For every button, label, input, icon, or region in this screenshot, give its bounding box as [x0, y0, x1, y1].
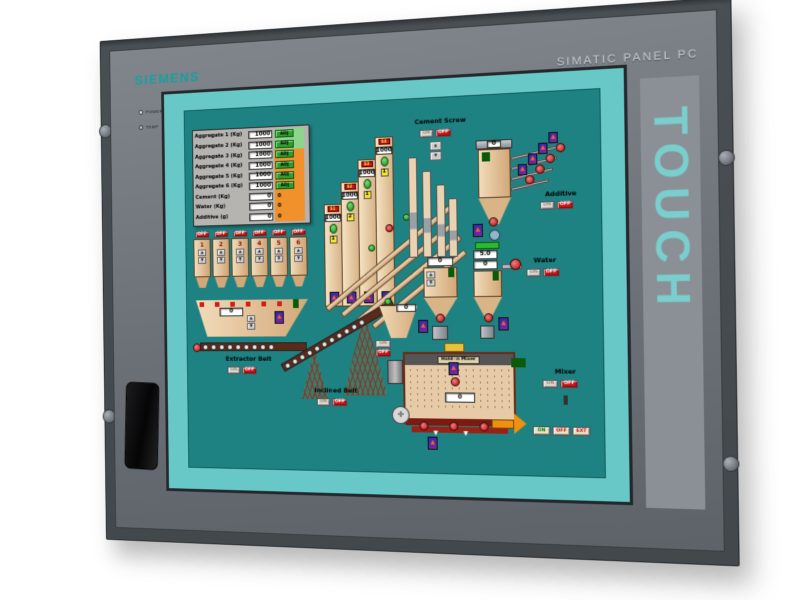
spinner-down-icon[interactable]: ▼	[275, 256, 283, 263]
silo-tag: S3	[361, 161, 373, 167]
valve-icon	[449, 422, 458, 431]
vibrator-icon: ▲	[448, 362, 458, 375]
bin-cone	[290, 276, 308, 287]
silo-value[interactable]: 1000	[325, 214, 341, 222]
water-cap	[475, 242, 499, 250]
power-led: POWER	[139, 109, 163, 115]
actual-value: 0	[275, 211, 305, 222]
hmi-screen[interactable]: Aggregate 1 (Kg)1000ADJ Aggregate 2 (Kg)…	[184, 88, 606, 478]
bin-off-button[interactable]: OFF	[195, 231, 209, 238]
inclined-off-button[interactable]: OFF	[332, 398, 347, 406]
mixer-motor	[387, 360, 403, 384]
marker-red-icon	[261, 301, 266, 306]
valve-icon	[479, 422, 488, 431]
flow-arrow	[492, 419, 515, 429]
valve-icon	[436, 314, 445, 323]
adj-button[interactable]: ADJ	[275, 171, 294, 180]
aggregate-bin: 2▲▼	[212, 238, 230, 277]
spinner-down-icon[interactable]: ▼	[430, 151, 442, 161]
bin-cone	[270, 276, 288, 287]
valve-icon	[193, 343, 201, 352]
adj-button[interactable]: ADJ	[275, 160, 294, 169]
extractor-belt-label: Extractor Belt	[209, 356, 288, 363]
valve-icon	[451, 377, 460, 386]
vibrator-icon: ▲	[548, 132, 558, 144]
marker-red-icon	[246, 302, 251, 307]
fan-icon: ✛	[392, 406, 410, 424]
silo-badge: 1	[363, 191, 371, 199]
spinner-up-icon[interactable]: ▲	[255, 248, 263, 255]
additive-label: Additive	[536, 190, 586, 199]
row-label: Aggregate 5 (Kg)	[195, 174, 247, 182]
discharge-ext-button[interactable]: EXT	[572, 427, 590, 437]
vibrator-icon: ▲	[418, 320, 428, 333]
cement-screw-off-button[interactable]: OFF	[435, 128, 451, 137]
aggregate-bin: 4▲▼	[250, 237, 268, 276]
adj-button[interactable]: ADJ	[275, 150, 294, 159]
adj-button[interactable]: ADJ	[275, 140, 294, 149]
vibrator-icon: ▲	[518, 164, 527, 176]
power-led-label: POWER	[146, 109, 163, 115]
value-field[interactable]: 1000	[248, 141, 272, 150]
mixer-off-button[interactable]: OFF	[560, 380, 578, 388]
sensor-green-icon	[346, 201, 354, 211]
vibrator-icon: ▲	[428, 437, 438, 450]
value-field[interactable]: 1000	[249, 172, 273, 181]
silo-tag: S1	[327, 206, 338, 212]
bin-off-button[interactable]: OFF	[214, 231, 229, 238]
water-setpoint[interactable]: 5.0	[473, 250, 497, 260]
aggregate-bin: 5▲▼	[270, 237, 288, 276]
marker-red-icon	[200, 302, 205, 307]
level-marks	[293, 301, 299, 308]
drum-texture	[407, 367, 512, 412]
aggregate-bin: 3▲▼	[231, 238, 249, 277]
spinner-down-icon[interactable]: ▼	[236, 256, 244, 263]
model-label: SIMATIC PANEL PC	[557, 48, 699, 69]
spinner-down-icon[interactable]: ▼	[294, 255, 303, 262]
drop-pipe	[436, 184, 446, 257]
extractor-value[interactable]: 0	[219, 308, 243, 317]
discharge-arrow-icon: ▼	[463, 431, 468, 438]
extractor-on-button[interactable]: ON	[228, 367, 241, 375]
discharge-bucket	[480, 325, 494, 338]
additive-hopper-value[interactable]: 0	[487, 140, 501, 148]
vibrator-icon: ▲	[538, 143, 548, 155]
mounting-clip	[718, 149, 735, 166]
spinner-down-icon[interactable]: ▼	[426, 279, 435, 286]
sensor-green-icon	[329, 224, 337, 234]
mixer-level-bar	[511, 360, 525, 367]
front-bezel: SIEMENS SIMATIC PANEL PC POWER TEMP TOUC…	[109, 9, 725, 552]
additive-on-button[interactable]: ON	[540, 201, 555, 210]
bin-off-button[interactable]: OFF	[233, 230, 248, 237]
mixer-banner: Hold in Mixer	[437, 356, 480, 364]
hold-hopper-value[interactable]: 0	[396, 304, 416, 312]
marker-red-icon	[230, 302, 235, 307]
silo-value[interactable]: 1000	[376, 146, 393, 155]
row-label: Additive (g)	[196, 215, 248, 222]
vibrator-icon: ▲	[528, 153, 537, 165]
drop-pipe	[422, 171, 432, 258]
sensor-green-icon	[380, 156, 388, 166]
spinner-down-icon[interactable]: ▼	[198, 257, 206, 264]
row-label: Water (Kg)	[196, 204, 248, 211]
bin-off-button[interactable]: OFF	[252, 230, 267, 237]
silo-value[interactable]: 1000	[359, 169, 376, 178]
value-field[interactable]: 1000	[249, 161, 273, 170]
mixer-inlet	[444, 343, 464, 352]
cement-screw-on-button[interactable]: ON	[419, 129, 433, 138]
spinner-up-icon[interactable]: ▲	[217, 249, 225, 256]
spinner-up-icon[interactable]: ▲	[294, 247, 303, 254]
silo-value[interactable]: 1000	[342, 191, 358, 199]
valve-icon	[546, 154, 556, 164]
siemens-logo: SIEMENS	[135, 69, 200, 88]
value-field[interactable]: 0	[249, 192, 273, 201]
spinner-up-icon[interactable]: ▲	[198, 250, 206, 257]
mounting-clip	[722, 456, 739, 472]
additive-off-button[interactable]: OFF	[557, 201, 574, 210]
discharge-ball	[489, 229, 500, 240]
bin-cone	[194, 277, 211, 288]
mixer-drum: Hold in Mixer	[403, 352, 516, 426]
vibrator-icon: ▲	[473, 224, 483, 237]
valve-icon	[420, 421, 429, 430]
temp-led-dot	[139, 125, 143, 130]
temp-led: TEMP	[139, 124, 159, 130]
cement-screw-label: Cement Screw	[409, 116, 471, 126]
vibrator-icon: ▲	[275, 311, 284, 324]
stylus-holder	[124, 382, 159, 471]
recipe-table: Aggregate 1 (Kg)1000ADJ Aggregate 2 (Kg)…	[192, 124, 311, 227]
water-on-button[interactable]: ON	[526, 269, 541, 277]
drop-pipe	[448, 198, 458, 257]
power-led-dot	[139, 110, 143, 115]
silo-badge: 1	[329, 236, 337, 244]
adj-button[interactable]: ADJ	[275, 129, 294, 138]
row-label: Aggregate 3 (Kg)	[195, 153, 247, 161]
valve-icon	[556, 143, 566, 153]
spinner-up-icon[interactable]: ▲	[426, 271, 435, 278]
marker-red-icon	[277, 301, 282, 306]
aggregate-bin: 1▲▼	[193, 239, 211, 278]
spinner-up-icon[interactable]: ▲	[275, 248, 283, 255]
mixer-value[interactable]: 0	[445, 392, 475, 402]
silo-tag: S2	[344, 184, 356, 190]
screen-frame: Aggregate 1 (Kg)1000ADJ Aggregate 2 (Kg)…	[161, 65, 633, 506]
mixer-label: Mixer	[544, 368, 586, 375]
value-field[interactable]: 1000	[248, 151, 272, 160]
aggregate-bin: 6▲▼	[289, 236, 307, 276]
discharge-on-button[interactable]: ON	[533, 426, 551, 436]
temp-led-label: TEMP	[146, 124, 159, 129]
value-field[interactable]: 0	[249, 203, 273, 212]
spinner-down-icon[interactable]: ▼	[217, 257, 225, 264]
spinner-up-icon[interactable]: ▲	[236, 249, 244, 256]
cement-hopper-value[interactable]: 0	[427, 257, 453, 267]
silo-badge: 2	[346, 213, 354, 221]
vibrator-icon: ▲	[498, 317, 508, 330]
water-off-button[interactable]: OFF	[543, 268, 560, 277]
drop-pipe	[408, 157, 418, 258]
discharge-bucket	[432, 326, 448, 340]
additive-weigh-hopper	[478, 148, 511, 198]
spinner-down-icon[interactable]: ▼	[247, 323, 255, 330]
aggregate-bins: OFF1▲▼ OFF2▲▼ OFF3▲▼ OFF4▲▼ OFF5▲▼ OFF6▲…	[193, 228, 311, 300]
hold-on-button[interactable]: ON	[375, 340, 391, 348]
touch-strip: TOUCH	[640, 75, 705, 509]
touch-label: TOUCH	[646, 105, 700, 509]
table-row: Additive (g)00	[195, 211, 309, 225]
row-label: Aggregate 1 (Kg)	[195, 133, 247, 141]
extractor-off-button[interactable]: OFF	[242, 367, 257, 375]
discharge-off-button[interactable]: OFF	[552, 426, 570, 436]
row-label: Aggregate 2 (Kg)	[195, 143, 247, 151]
extractor-belt	[200, 342, 307, 351]
sensor-green-icon	[368, 245, 375, 252]
marker-red-icon	[215, 302, 220, 307]
inclined-on-button[interactable]: ON	[317, 398, 330, 406]
value-field[interactable]: 1000	[249, 182, 273, 191]
screen-surround: Aggregate 1 (Kg)1000ADJ Aggregate 2 (Kg)…	[164, 68, 630, 502]
spinner-up-icon[interactable]: ▲	[430, 141, 442, 151]
bin-off-button[interactable]: OFF	[291, 228, 306, 235]
panel-pc-unit: SIEMENS SIMATIC PANEL PC POWER TEMP TOUC…	[100, 0, 740, 566]
adj-button[interactable]: ADJ	[276, 181, 295, 189]
bin-cone	[232, 277, 250, 288]
bin-cone	[213, 277, 230, 288]
bin-off-button[interactable]: OFF	[271, 229, 286, 236]
row-label: Aggregate 6 (Kg)	[195, 184, 247, 192]
sensor-green-icon	[385, 298, 392, 305]
inclined-belt-label: Inclined Belt	[305, 387, 366, 394]
flow-arrow-head	[514, 413, 527, 434]
value-field[interactable]: 1000	[248, 130, 272, 139]
spinner-up-icon[interactable]: ▲	[247, 315, 255, 322]
valve-icon	[484, 313, 493, 322]
row-label: Cement (Kg)	[196, 194, 248, 201]
mixer-on-button[interactable]: ON	[542, 380, 558, 388]
water-weigh-hopper	[473, 270, 502, 297]
sensor-green-icon	[363, 179, 371, 189]
scene: SIEMENS SIMATIC PANEL PC POWER TEMP TOUC…	[0, 0, 800, 600]
water-hopper-value[interactable]: 0	[473, 260, 497, 270]
valve-icon	[489, 217, 498, 226]
silo-badge: 1	[380, 168, 388, 176]
hold-off-button[interactable]: OFF	[375, 349, 391, 357]
row-label: Aggregate 4 (Kg)	[195, 163, 247, 171]
value-field[interactable]: 0	[249, 213, 273, 221]
bin-cone	[251, 276, 269, 287]
water-label: Water	[524, 257, 566, 265]
silo-tag: S4	[378, 138, 390, 145]
spinner-down-icon[interactable]: ▼	[255, 256, 263, 263]
mixer-state-indicator	[564, 398, 568, 405]
